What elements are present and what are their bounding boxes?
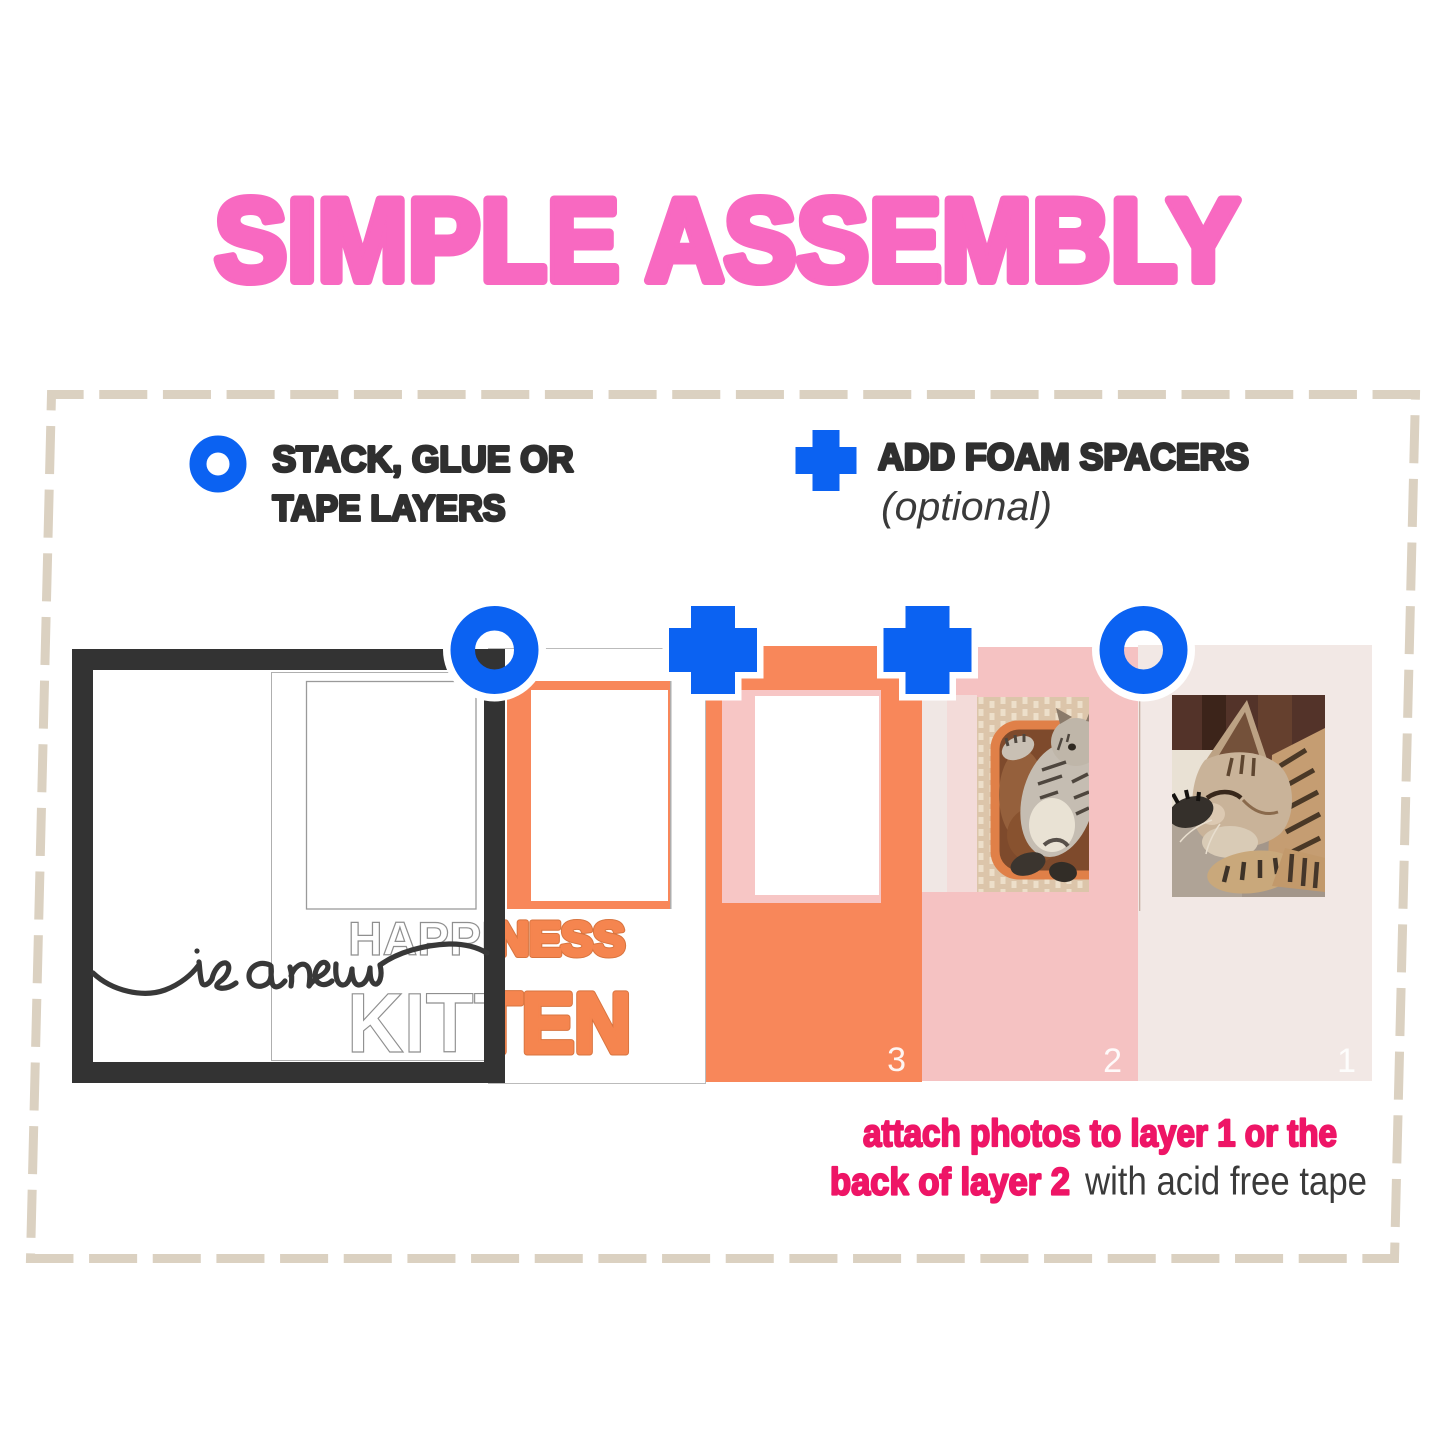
svg-text:1: 1	[1337, 1042, 1356, 1080]
svg-text:back of layer 2: back of layer 2	[830, 1162, 1070, 1204]
svg-text:with acid free tape: with acid free tape	[1084, 1160, 1367, 1204]
svg-text:ADD FOAM SPACERS: ADD FOAM SPACERS	[878, 437, 1249, 478]
svg-text:SIMPLE ASSEMBLY: SIMPLE ASSEMBLY	[215, 175, 1240, 306]
svg-text:attach photos to layer 1 or th: attach photos to layer 1 or the	[863, 1113, 1337, 1155]
svg-text:(optional): (optional)	[881, 485, 1052, 529]
svg-text:3: 3	[887, 1041, 906, 1079]
svg-text:STACK, GLUE OR: STACK, GLUE OR	[273, 439, 574, 480]
svg-text:2: 2	[1103, 1042, 1122, 1080]
svg-text:TAPE LAYERS: TAPE LAYERS	[273, 488, 506, 529]
